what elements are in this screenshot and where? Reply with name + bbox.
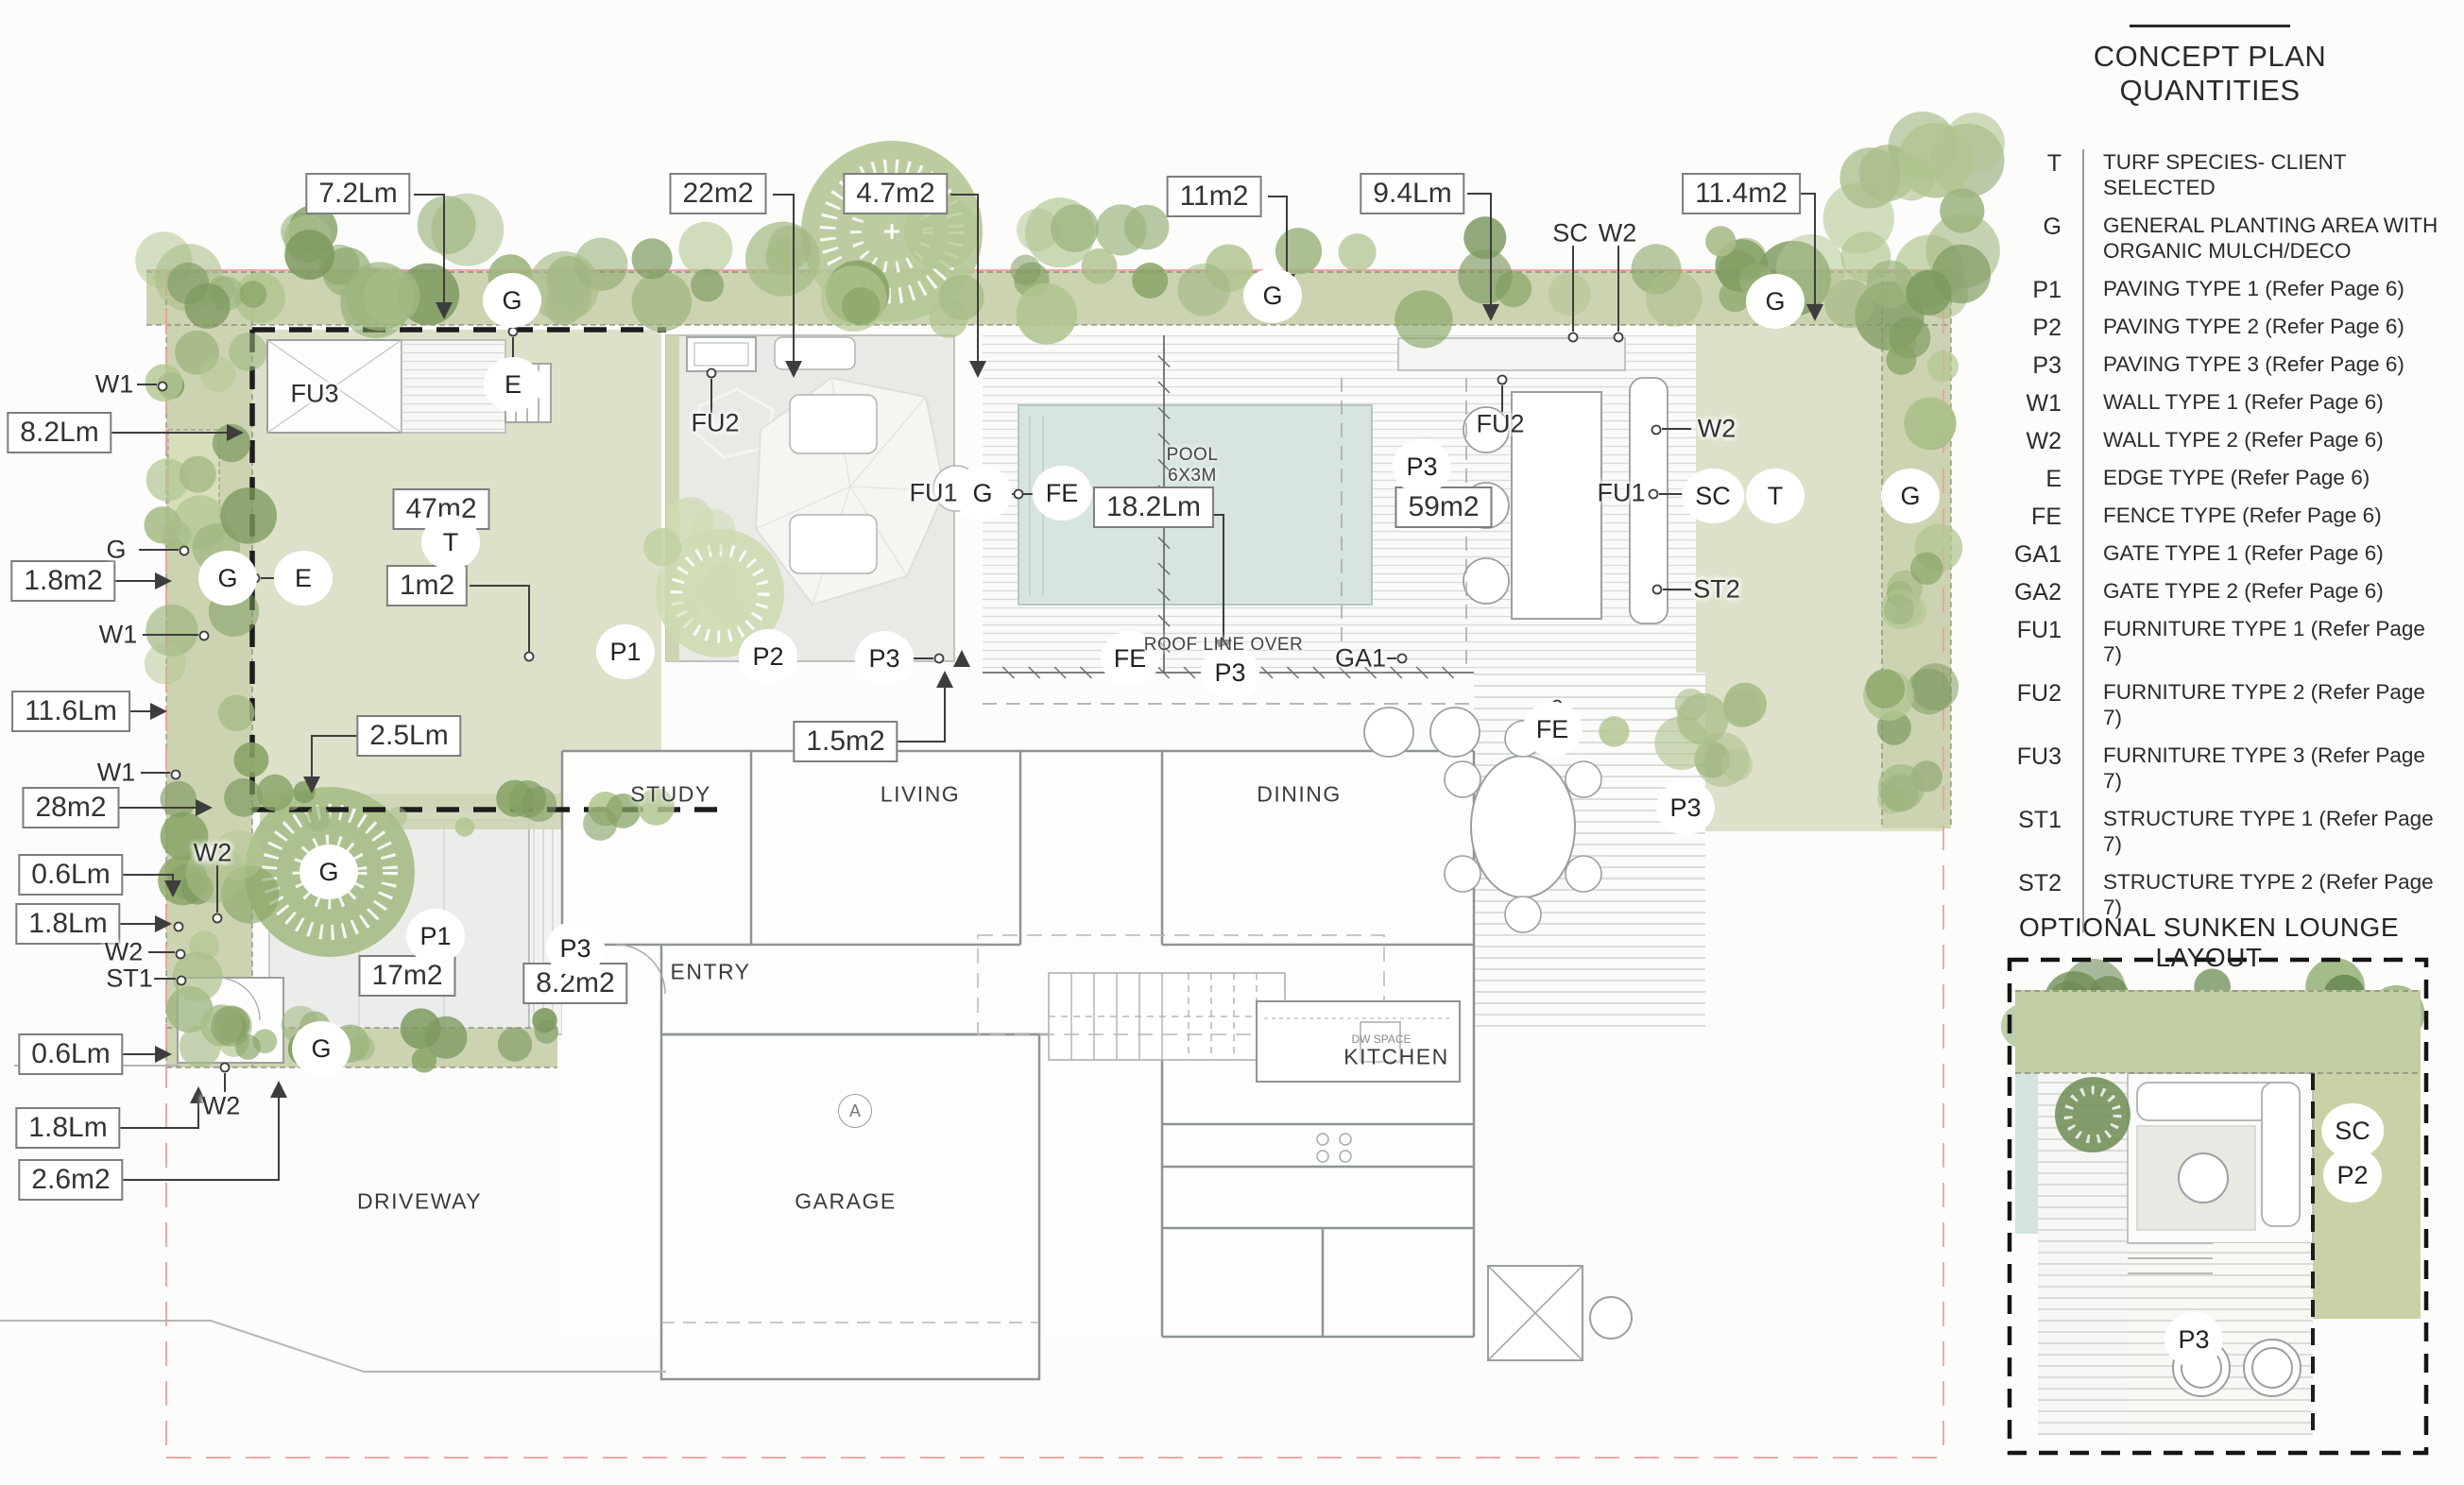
legend-item-fu2: FU2FURNITURE TYPE 2 (Refer Page 7) xyxy=(1980,679,2439,742)
label-1-8lm: 1.8Lm xyxy=(15,1107,120,1149)
legend-title-line1: CONCEPT PLAN xyxy=(1980,40,2439,74)
label-9-4lm: 9.4Lm xyxy=(1360,173,1464,214)
label-p3: P3 xyxy=(1656,780,1715,835)
legend-item-p2: P2PAVING TYPE 2 (Refer Page 6) xyxy=(1980,314,2439,351)
label-p3: P3 xyxy=(1393,439,1451,494)
legend-item-w2: W2WALL TYPE 2 (Refer Page 6) xyxy=(1980,427,2439,465)
legend-desc: STRUCTURE TYPE 1 (Refer Page 7) xyxy=(2082,806,2439,869)
label-0-6lm: 0.6Lm xyxy=(18,854,123,896)
label-t: T xyxy=(421,515,480,570)
label-p2: P2 xyxy=(2323,1148,2382,1203)
legend-code: GA1 xyxy=(1980,540,2082,578)
inset-title: OPTIONAL SUNKEN LOUNGE LAYOUT xyxy=(1976,913,2441,973)
legend-code: FU3 xyxy=(1980,742,2082,806)
label-e: E xyxy=(274,551,333,606)
label-22m2: 22m2 xyxy=(669,173,766,214)
label-8-2lm: 8.2Lm xyxy=(7,412,111,453)
label-garage: GARAGE xyxy=(795,1189,896,1215)
legend-desc: GENERAL PLANTING AREA WITH ORGANIC MULCH… xyxy=(2082,213,2439,276)
legend-desc: PAVING TYPE 1 (Refer Page 6) xyxy=(2082,276,2439,314)
label-sc: SC xyxy=(1552,219,1588,248)
label-kitchen: KITCHEN xyxy=(1343,1045,1448,1070)
label-11-6lm: 11.6Lm xyxy=(11,691,130,732)
legend-title-line2: QUANTITIES xyxy=(1980,74,2439,108)
legend-item-ga1: GA1GATE TYPE 1 (Refer Page 6) xyxy=(1980,540,2439,578)
label-fe: FE xyxy=(1033,466,1092,521)
label-w1: W1 xyxy=(99,621,138,650)
label-e: E xyxy=(484,357,542,412)
legend-desc: WALL TYPE 1 (Refer Page 6) xyxy=(2082,389,2439,427)
label-g: G xyxy=(953,466,1012,521)
label-g: G xyxy=(106,536,126,565)
legend-item-g: GGENERAL PLANTING AREA WITH ORGANIC MULC… xyxy=(1980,213,2439,276)
legend-panel: CONCEPT PLAN QUANTITIES TTURF SPECIES- C… xyxy=(1980,25,2439,932)
legend-item-e: EEDGE TYPE (Refer Page 6) xyxy=(1980,465,2439,503)
legend-overline xyxy=(2130,25,2290,27)
legend-code: E xyxy=(1980,465,2082,503)
legend-desc: FURNITURE TYPE 3 (Refer Page 7) xyxy=(2082,742,2439,806)
label-g: G xyxy=(1243,268,1302,323)
label-fu3: FU3 xyxy=(290,380,338,409)
label-g: G xyxy=(483,273,541,328)
legend-code: FE xyxy=(1980,503,2082,540)
label-roof-line-over: ROOF LINE OVER xyxy=(1144,635,1304,656)
legend-desc: EDGE TYPE (Refer Page 6) xyxy=(2082,465,2439,503)
label-entry: ENTRY xyxy=(670,960,750,985)
legend-desc: TURF SPECIES- CLIENT SELECTED xyxy=(2082,149,2439,213)
label-sc: SC xyxy=(1682,469,1744,523)
legend-item-fu1: FU1FURNITURE TYPE 1 (Refer Page 7) xyxy=(1980,616,2439,679)
legend-code: P3 xyxy=(1980,351,2082,389)
label-g: G xyxy=(299,845,358,899)
legend-code: W1 xyxy=(1980,389,2082,427)
legend-desc: PAVING TYPE 3 (Refer Page 6) xyxy=(2082,351,2439,389)
legend-code: FU2 xyxy=(1980,679,2082,742)
label-a: A xyxy=(838,1094,872,1128)
label-st1: ST1 xyxy=(106,964,153,994)
legend-item-t: TTURF SPECIES- CLIENT SELECTED xyxy=(1980,149,2439,213)
label-0-6lm: 0.6Lm xyxy=(18,1033,123,1075)
label-fe: FE xyxy=(1523,702,1583,757)
label-p3: P3 xyxy=(855,631,914,686)
label-6x3m: 6X3M xyxy=(1168,466,1217,486)
label-w2: W2 xyxy=(105,938,144,967)
legend-desc: FENCE TYPE (Refer Page 6) xyxy=(2082,503,2439,540)
legend-item-fe: FEFENCE TYPE (Refer Page 6) xyxy=(1980,503,2439,540)
label-p2: P2 xyxy=(739,629,797,684)
label-living: LIVING xyxy=(881,782,960,808)
legend-items: TTURF SPECIES- CLIENT SELECTEDGGENERAL P… xyxy=(1980,149,2439,932)
label-st2: ST2 xyxy=(1693,575,1740,605)
label-g: G xyxy=(1881,469,1940,523)
label-study: STUDY xyxy=(630,782,710,808)
legend-code: T xyxy=(1980,149,2082,213)
legend-desc: GATE TYPE 2 (Refer Page 6) xyxy=(2082,578,2439,616)
label-7-2lm: 7.2Lm xyxy=(305,173,410,214)
legend-item-st1: ST1STRUCTURE TYPE 1 (Refer Page 7) xyxy=(1980,806,2439,869)
label-w1: W1 xyxy=(95,370,134,400)
label-ga1: GA1 xyxy=(1335,644,1386,674)
label-w2: W2 xyxy=(1698,415,1737,444)
legend-desc: FURNITURE TYPE 2 (Refer Page 7) xyxy=(2082,679,2439,742)
legend-desc: GATE TYPE 1 (Refer Page 6) xyxy=(2082,540,2439,578)
label-g: G xyxy=(1746,274,1805,329)
legend-item-w1: W1WALL TYPE 1 (Refer Page 6) xyxy=(1980,389,2439,427)
legend-desc: PAVING TYPE 2 (Refer Page 6) xyxy=(2082,314,2439,351)
legend-code: ST1 xyxy=(1980,806,2082,869)
legend-item-fu3: FU3FURNITURE TYPE 3 (Refer Page 7) xyxy=(1980,742,2439,806)
label-t: T xyxy=(1746,469,1805,523)
label-2-5lm: 2.5Lm xyxy=(356,715,461,757)
label-p3: P3 xyxy=(2165,1312,2223,1367)
label-g: G xyxy=(198,551,257,606)
label-w2: W2 xyxy=(1599,219,1637,248)
label-w2: W2 xyxy=(194,839,232,868)
legend-item-p3: P3PAVING TYPE 3 (Refer Page 6) xyxy=(1980,351,2439,389)
legend-title: CONCEPT PLAN QUANTITIES xyxy=(1980,40,2439,108)
label-p1: P1 xyxy=(596,624,655,679)
legend-code: P1 xyxy=(1980,276,2082,314)
label-4-7m2: 4.7m2 xyxy=(843,173,948,214)
legend-code: GA2 xyxy=(1980,578,2082,616)
label-1-5m2: 1.5m2 xyxy=(793,721,898,762)
label-1-8m2: 1.8m2 xyxy=(10,560,115,602)
label-59m2: 59m2 xyxy=(1395,486,1492,528)
label-driveway: DRIVEWAY xyxy=(357,1189,482,1215)
label-11-4m2: 11.4m2 xyxy=(1682,173,1801,214)
label-fu2: FU2 xyxy=(1476,410,1524,439)
label-11m2: 11m2 xyxy=(1167,176,1262,217)
label-fu1: FU1 xyxy=(909,479,957,508)
concept-plan-page: 7.2Lm22m24.7m211m29.4Lm11.4m28.2Lm1.8m21… xyxy=(0,0,2464,1485)
label-pool: POOL xyxy=(1167,445,1219,466)
legend-code: G xyxy=(1980,213,2082,276)
label-18-2lm: 18.2Lm xyxy=(1093,486,1214,528)
legend-code: W2 xyxy=(1980,427,2082,465)
legend-code: FU1 xyxy=(1980,616,2082,679)
legend-item-p1: P1PAVING TYPE 1 (Refer Page 6) xyxy=(1980,276,2439,314)
label-2-6m2: 2.6m2 xyxy=(18,1159,123,1201)
label-w1: W1 xyxy=(97,759,136,788)
label-fu1: FU1 xyxy=(1597,479,1645,508)
legend-code: P2 xyxy=(1980,314,2082,351)
legend-desc: WALL TYPE 2 (Refer Page 6) xyxy=(2082,427,2439,465)
label-1m2: 1m2 xyxy=(386,565,468,606)
label-w2: W2 xyxy=(202,1092,241,1121)
legend-item-ga2: GA2GATE TYPE 2 (Refer Page 6) xyxy=(1980,578,2439,616)
label-p3: P3 xyxy=(546,921,605,976)
label-dining: DINING xyxy=(1257,782,1342,808)
label-28m2: 28m2 xyxy=(22,787,119,828)
label-p1: P1 xyxy=(406,909,465,964)
label-fu2: FU2 xyxy=(691,409,739,438)
label-g: G xyxy=(292,1021,351,1076)
legend-desc: FURNITURE TYPE 1 (Refer Page 7) xyxy=(2082,616,2439,679)
